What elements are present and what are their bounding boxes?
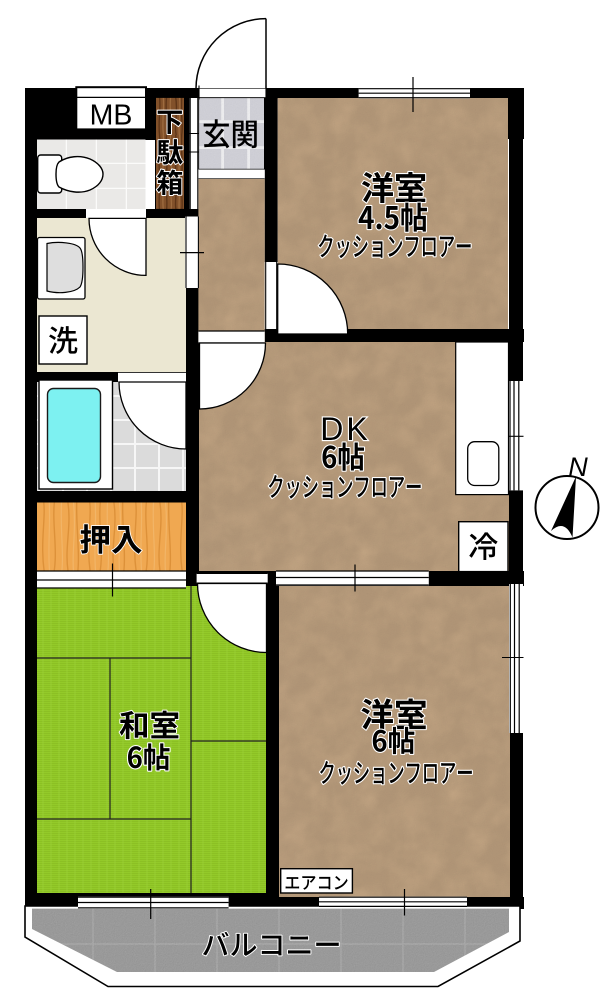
svg-text:MB: MB (90, 100, 133, 132)
svg-text:N: N (568, 452, 588, 482)
